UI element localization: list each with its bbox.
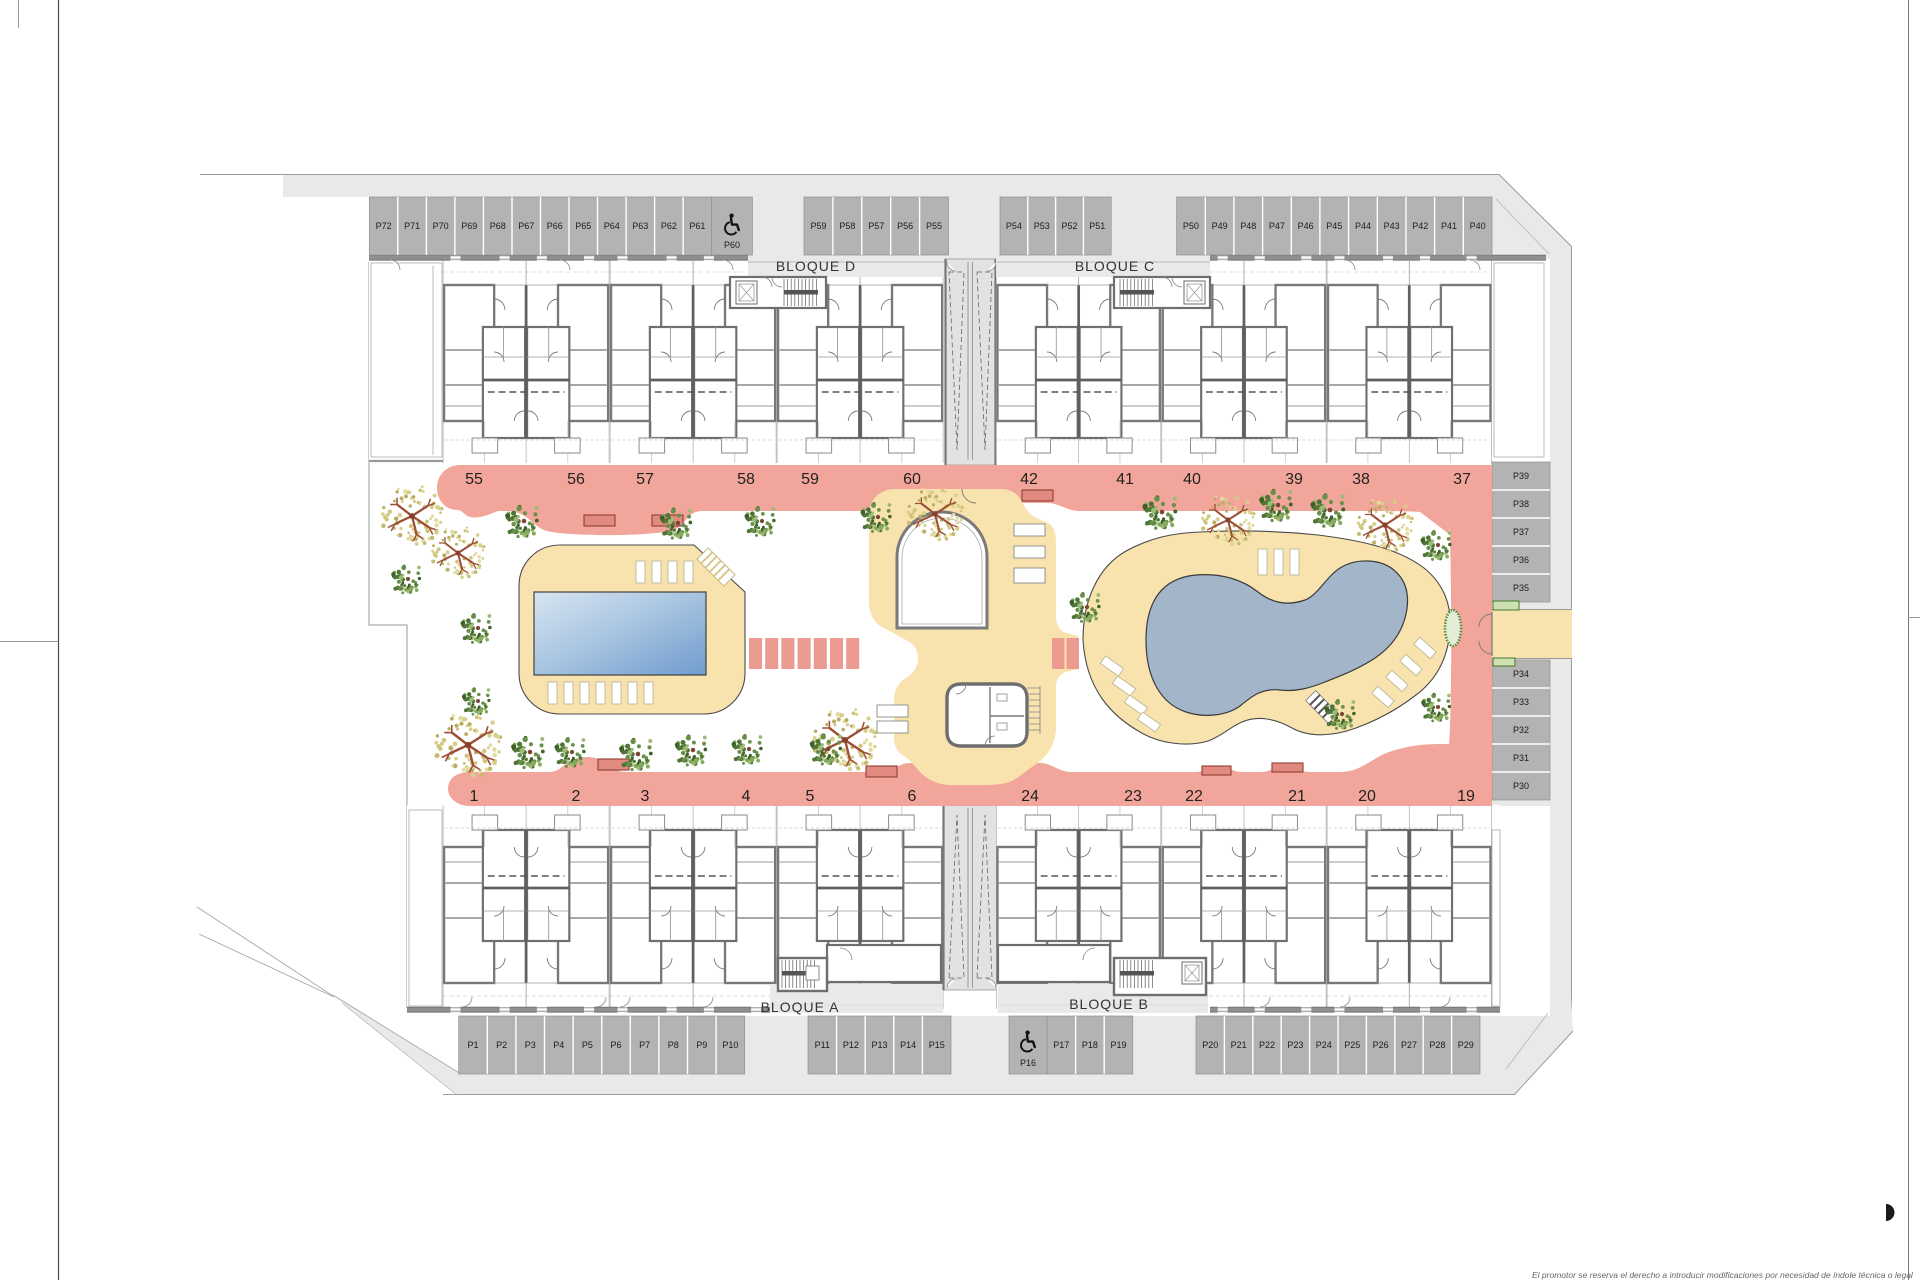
svg-text:42: 42	[1020, 471, 1038, 488]
svg-text:P12: P12	[843, 1040, 859, 1050]
svg-text:37: 37	[1453, 471, 1471, 488]
svg-text:P41: P41	[1441, 221, 1457, 231]
svg-text:P47: P47	[1269, 221, 1285, 231]
svg-text:P7: P7	[639, 1040, 650, 1050]
svg-text:P1: P1	[467, 1040, 478, 1050]
svg-text:38: 38	[1352, 471, 1370, 488]
svg-text:P60: P60	[724, 240, 740, 250]
svg-text:P6: P6	[610, 1040, 621, 1050]
svg-text:P14: P14	[900, 1040, 916, 1050]
svg-text:P51: P51	[1089, 221, 1105, 231]
svg-text:24: 24	[1021, 788, 1039, 805]
svg-text:20: 20	[1358, 788, 1376, 805]
svg-text:P11: P11	[815, 1040, 830, 1050]
svg-text:P44: P44	[1355, 221, 1371, 231]
svg-text:P32: P32	[1513, 725, 1529, 735]
svg-text:P66: P66	[547, 221, 563, 231]
svg-text:P4: P4	[553, 1040, 564, 1050]
svg-text:39: 39	[1285, 471, 1303, 488]
svg-text:P37: P37	[1513, 527, 1529, 537]
svg-text:P33: P33	[1513, 697, 1529, 707]
svg-text:22: 22	[1185, 788, 1203, 805]
svg-text:57: 57	[636, 471, 654, 488]
svg-text:P25: P25	[1344, 1040, 1360, 1050]
svg-text:P69: P69	[461, 221, 477, 231]
svg-text:55: 55	[465, 471, 483, 488]
svg-text:P9: P9	[696, 1040, 707, 1050]
svg-text:P38: P38	[1513, 499, 1529, 509]
svg-text:P36: P36	[1513, 555, 1529, 565]
svg-text:BLOQUE B: BLOQUE B	[1069, 996, 1149, 1012]
svg-text:56: 56	[567, 471, 585, 488]
svg-text:41: 41	[1116, 471, 1134, 488]
svg-text:P55: P55	[926, 221, 942, 231]
svg-text:P72: P72	[376, 221, 392, 231]
svg-text:P54: P54	[1006, 221, 1022, 231]
svg-text:P62: P62	[661, 221, 677, 231]
svg-text:P65: P65	[575, 221, 591, 231]
svg-text:P68: P68	[490, 221, 506, 231]
svg-text:P45: P45	[1326, 221, 1342, 231]
svg-text:P63: P63	[632, 221, 648, 231]
svg-text:P10: P10	[722, 1040, 738, 1050]
svg-text:P31: P31	[1513, 753, 1529, 763]
svg-text:P57: P57	[868, 221, 884, 231]
svg-text:P48: P48	[1240, 221, 1256, 231]
svg-text:P50: P50	[1183, 221, 1199, 231]
svg-text:P30: P30	[1513, 781, 1529, 791]
svg-text:P40: P40	[1470, 221, 1486, 231]
svg-text:P67: P67	[518, 221, 534, 231]
svg-text:60: 60	[903, 471, 921, 488]
svg-text:58: 58	[737, 471, 755, 488]
svg-text:P3: P3	[525, 1040, 536, 1050]
svg-text:19: 19	[1457, 788, 1475, 805]
svg-text:BLOQUE D: BLOQUE D	[776, 258, 856, 274]
svg-text:P49: P49	[1212, 221, 1228, 231]
svg-text:P46: P46	[1298, 221, 1314, 231]
svg-text:P5: P5	[582, 1040, 593, 1050]
svg-text:P53: P53	[1034, 221, 1050, 231]
svg-text:3: 3	[641, 788, 650, 805]
svg-text:P18: P18	[1082, 1040, 1098, 1050]
svg-text:P52: P52	[1061, 221, 1077, 231]
svg-text:6: 6	[908, 788, 917, 805]
svg-text:P35: P35	[1513, 583, 1529, 593]
svg-text:P15: P15	[929, 1040, 945, 1050]
svg-text:P13: P13	[871, 1040, 887, 1050]
svg-text:P26: P26	[1373, 1040, 1389, 1050]
svg-text:P28: P28	[1429, 1040, 1445, 1050]
svg-text:P56: P56	[897, 221, 913, 231]
svg-text:40: 40	[1183, 471, 1201, 488]
svg-text:P64: P64	[604, 221, 620, 231]
svg-text:P23: P23	[1287, 1040, 1303, 1050]
svg-text:P34: P34	[1513, 669, 1529, 679]
svg-text:P17: P17	[1053, 1040, 1069, 1050]
svg-text:P20: P20	[1202, 1040, 1218, 1050]
svg-text:P43: P43	[1384, 221, 1400, 231]
svg-text:P71: P71	[404, 221, 420, 231]
svg-text:P19: P19	[1110, 1040, 1126, 1050]
svg-text:BLOQUE C: BLOQUE C	[1075, 258, 1155, 274]
svg-text:P22: P22	[1259, 1040, 1275, 1050]
svg-text:P24: P24	[1316, 1040, 1332, 1050]
svg-text:P2: P2	[496, 1040, 507, 1050]
svg-text:P21: P21	[1231, 1040, 1247, 1050]
svg-text:1: 1	[470, 788, 479, 805]
svg-text:4: 4	[742, 788, 751, 805]
svg-text:El promotor se reserva el dere: El promotor se reserva el derecho a intr…	[1532, 1270, 1914, 1280]
svg-text:P61: P61	[689, 221, 705, 231]
svg-text:5: 5	[806, 788, 815, 805]
svg-text:2: 2	[572, 788, 581, 805]
svg-text:P39: P39	[1513, 471, 1529, 481]
svg-text:P58: P58	[839, 221, 855, 231]
svg-text:21: 21	[1288, 788, 1306, 805]
svg-text:P16: P16	[1020, 1058, 1036, 1068]
svg-text:P29: P29	[1458, 1040, 1474, 1050]
svg-text:P42: P42	[1412, 221, 1428, 231]
svg-text:BLOQUE A: BLOQUE A	[761, 999, 840, 1015]
svg-text:23: 23	[1124, 788, 1142, 805]
svg-text:P70: P70	[433, 221, 449, 231]
svg-text:59: 59	[801, 471, 819, 488]
svg-text:P59: P59	[810, 221, 826, 231]
svg-text:P8: P8	[668, 1040, 679, 1050]
svg-text:P27: P27	[1401, 1040, 1417, 1050]
